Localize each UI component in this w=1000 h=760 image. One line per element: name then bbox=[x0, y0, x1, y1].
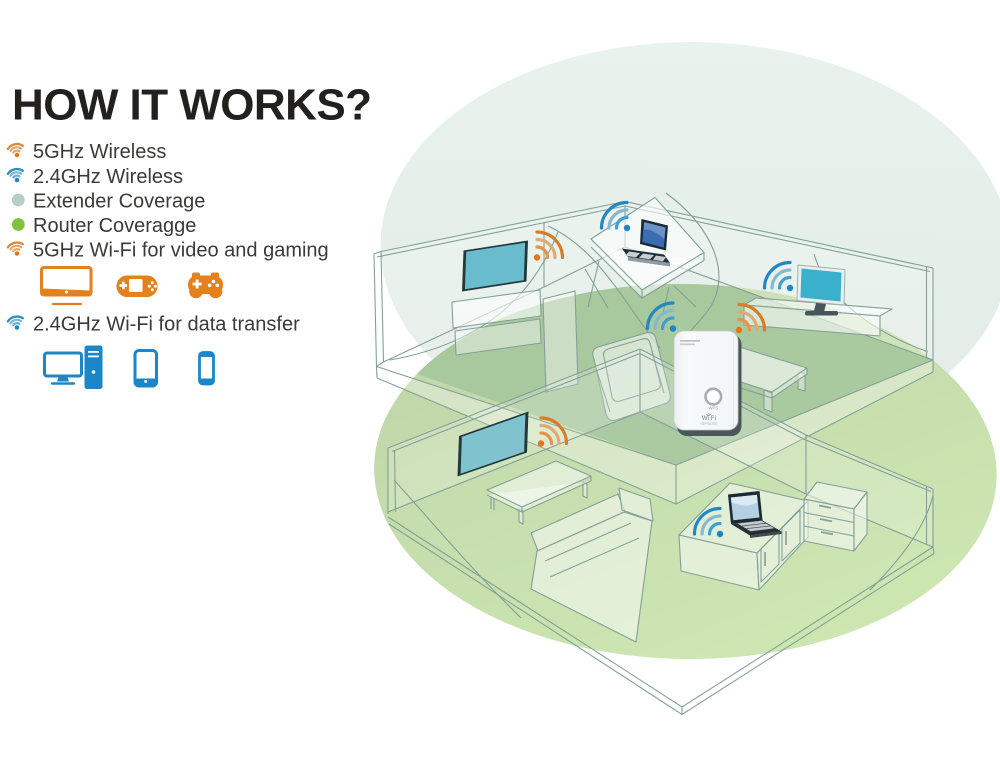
svg-text:2.4GHz Wi-Fi for data transfer: 2.4GHz Wi-Fi for data transfer bbox=[33, 314, 300, 336]
svg-text:5GHz Wi-Fi for video and gamin: 5GHz Wi-Fi for video and gaming bbox=[33, 240, 329, 262]
svg-text:HOW IT WORKS?: HOW IT WORKS? bbox=[12, 81, 371, 130]
svg-text:WPS: WPS bbox=[709, 406, 719, 411]
svg-text:2.4GHz Wireless: 2.4GHz Wireless bbox=[33, 166, 183, 188]
svg-text:REPEATER: REPEATER bbox=[701, 422, 719, 426]
svg-text:Extender Coverage: Extender Coverage bbox=[33, 191, 205, 213]
svg-text:5GHz Wireless: 5GHz Wireless bbox=[33, 141, 166, 163]
svg-text:Router Coveragge: Router Coveragge bbox=[33, 215, 196, 237]
